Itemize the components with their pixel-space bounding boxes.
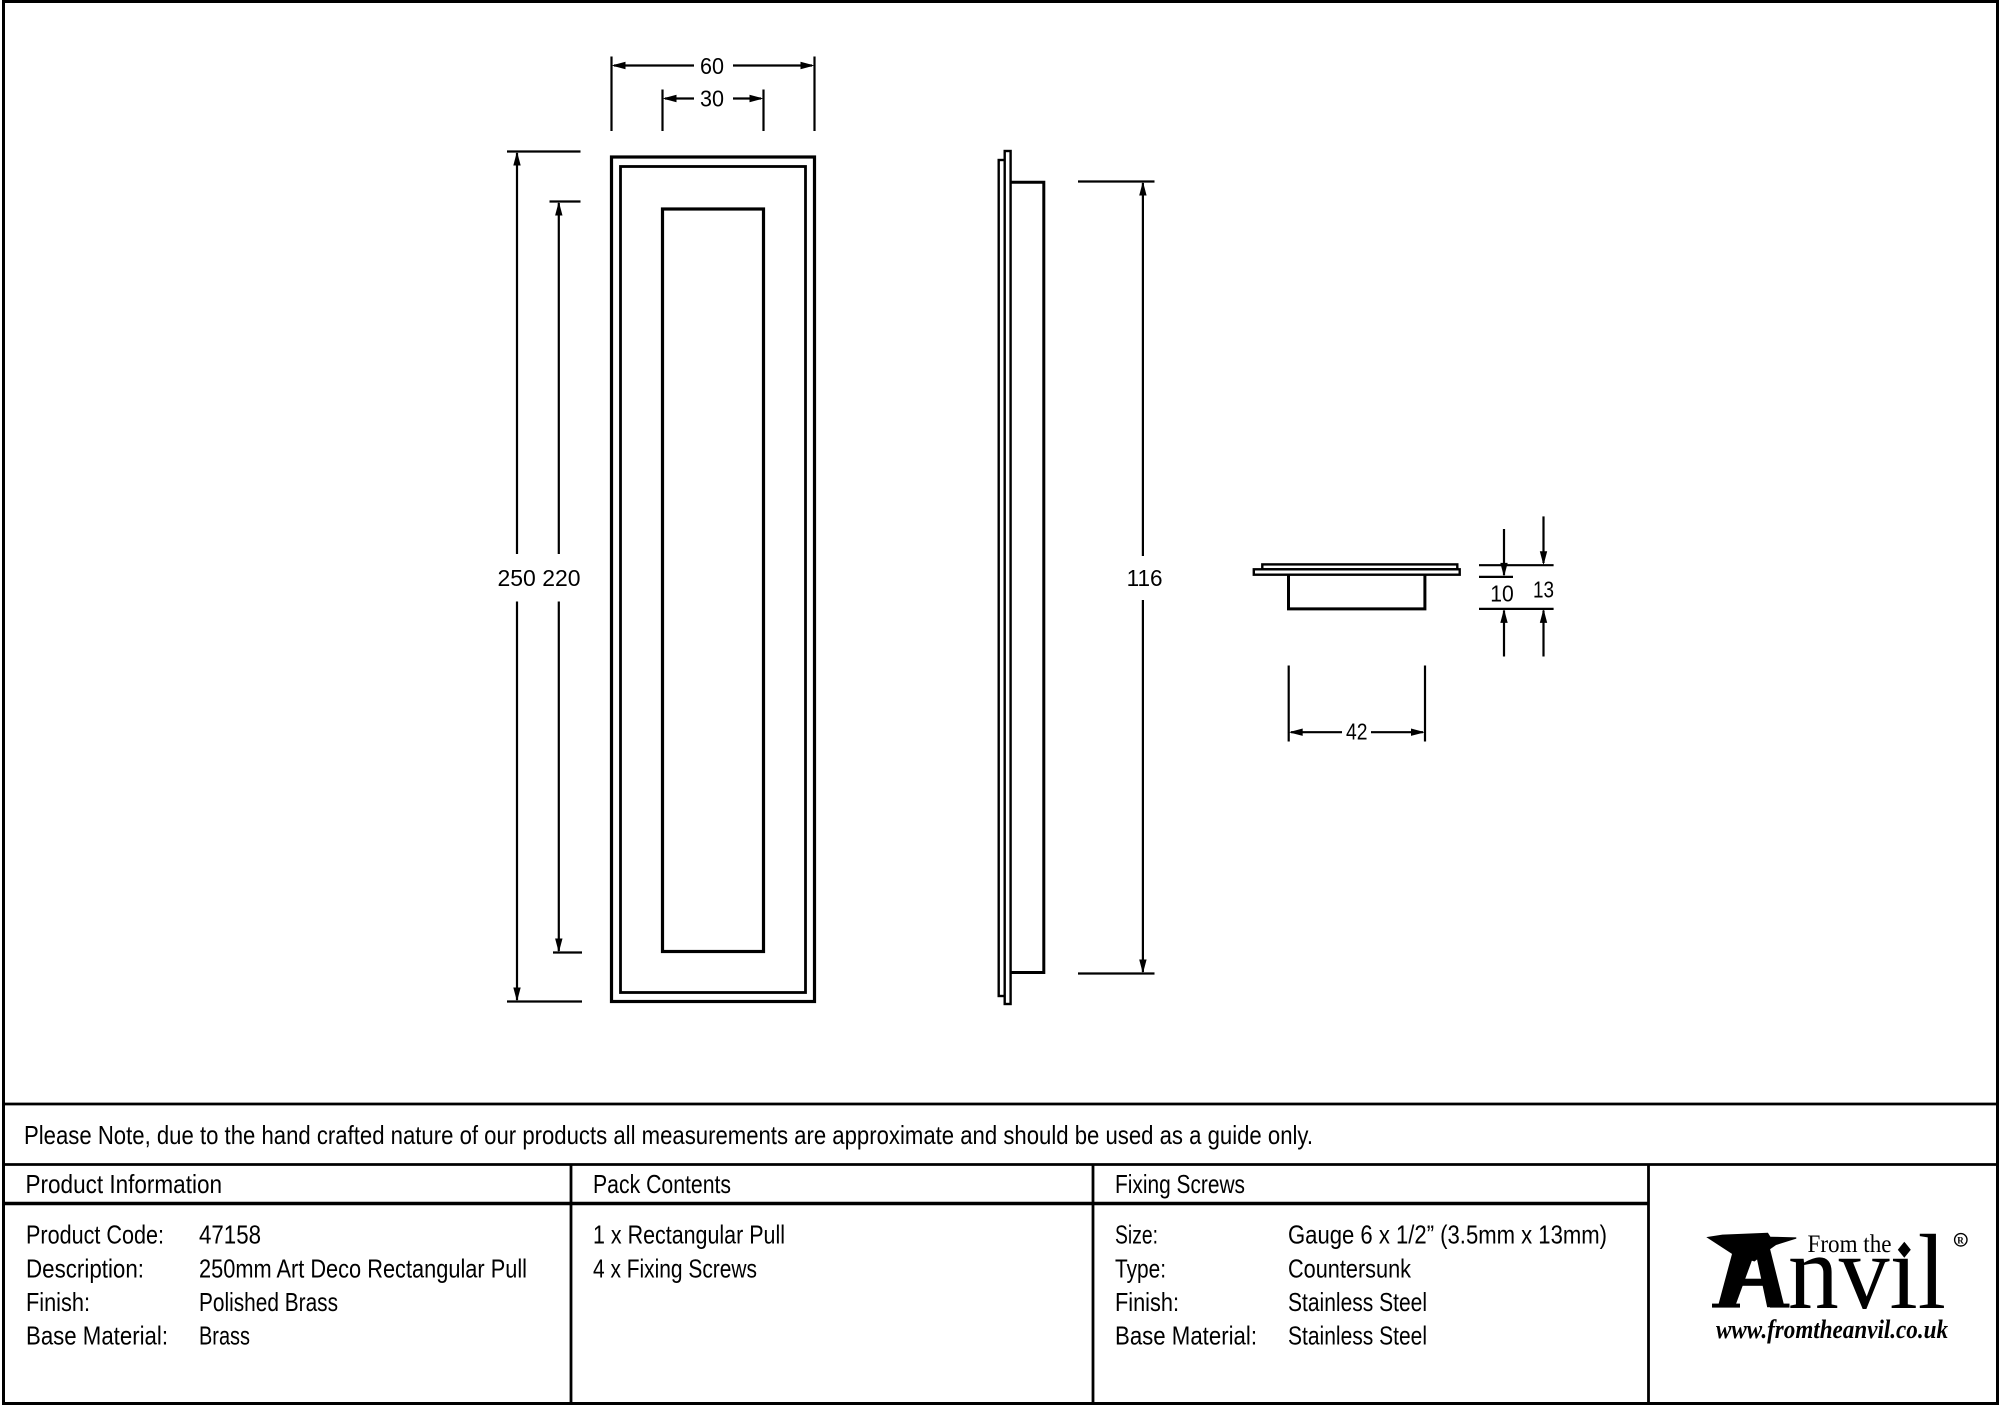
svg-text:R: R bbox=[1957, 1236, 1964, 1246]
svg-text:Base Material:: Base Material: bbox=[26, 1321, 168, 1351]
svg-text:Fixing Screws: Fixing Screws bbox=[1115, 1169, 1245, 1199]
svg-text:Base Material:: Base Material: bbox=[1115, 1321, 1257, 1351]
svg-text:250mm Art Deco Rectangular Pul: 250mm Art Deco Rectangular Pull bbox=[199, 1254, 527, 1284]
svg-text:Pack Contents: Pack Contents bbox=[593, 1169, 731, 1199]
svg-text:30: 30 bbox=[700, 86, 724, 112]
svg-text:1 x Rectangular Pull: 1 x Rectangular Pull bbox=[593, 1220, 785, 1250]
svg-text:Product Information: Product Information bbox=[26, 1169, 223, 1199]
svg-text:Stainless Steel: Stainless Steel bbox=[1288, 1321, 1427, 1351]
svg-text:Brass: Brass bbox=[199, 1321, 250, 1351]
svg-text:10: 10 bbox=[1490, 581, 1514, 607]
svg-text:42: 42 bbox=[1346, 719, 1368, 745]
svg-text:13: 13 bbox=[1533, 577, 1554, 603]
svg-text:Finish:: Finish: bbox=[1115, 1287, 1179, 1317]
svg-text:From the: From the bbox=[1808, 1231, 1892, 1258]
svg-text:Type:: Type: bbox=[1115, 1254, 1166, 1284]
svg-text:250 220: 250 220 bbox=[498, 565, 581, 591]
svg-text:116: 116 bbox=[1127, 565, 1163, 591]
svg-text:Size:: Size: bbox=[1115, 1220, 1158, 1250]
svg-text:Polished Brass: Polished Brass bbox=[199, 1287, 338, 1317]
svg-text:47158: 47158 bbox=[199, 1220, 261, 1250]
svg-text:60: 60 bbox=[700, 53, 724, 79]
svg-text:4 x Fixing Screws: 4 x Fixing Screws bbox=[593, 1254, 757, 1284]
svg-text:Gauge 6 x 1/2” (3.5mm x 13mm): Gauge 6 x 1/2” (3.5mm x 13mm) bbox=[1288, 1220, 1607, 1250]
svg-text:www.fromtheanvil.co.uk: www.fromtheanvil.co.uk bbox=[1716, 1315, 1948, 1344]
svg-text:Description:: Description: bbox=[26, 1254, 144, 1284]
svg-text:Please Note, due to the hand c: Please Note, due to the hand crafted nat… bbox=[24, 1120, 1313, 1150]
svg-text:Product Code:: Product Code: bbox=[26, 1220, 164, 1250]
svg-text:Countersunk: Countersunk bbox=[1288, 1254, 1412, 1284]
svg-text:Finish:: Finish: bbox=[26, 1287, 90, 1317]
svg-text:Stainless Steel: Stainless Steel bbox=[1288, 1287, 1427, 1317]
